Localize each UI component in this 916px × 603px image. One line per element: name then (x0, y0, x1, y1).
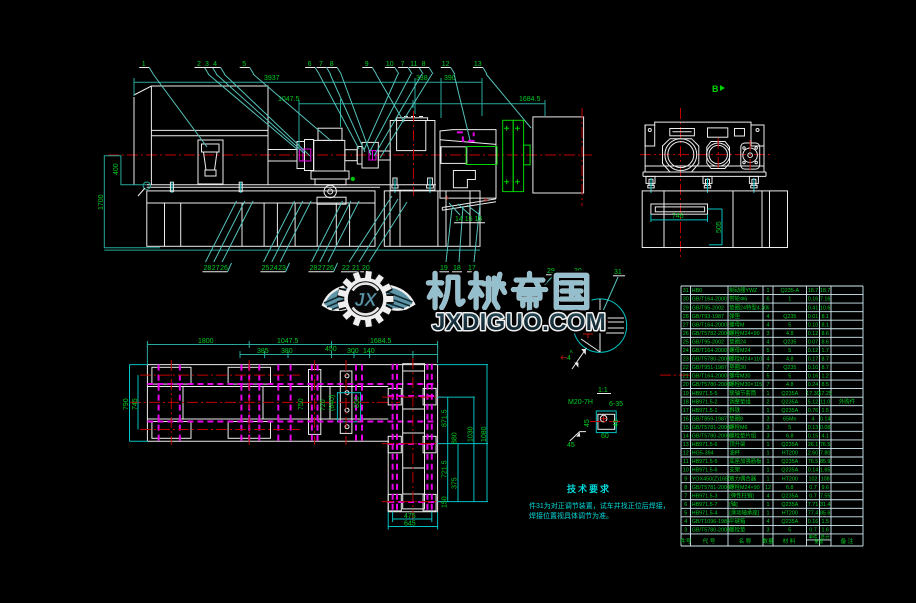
svg-text:18.7: 18.7 (808, 288, 819, 294)
svg-text:23: 23 (683, 357, 689, 363)
svg-text:代 号: 代 号 (703, 537, 716, 545)
svg-text:1030: 1030 (468, 426, 475, 442)
svg-text:4.8: 4.8 (786, 382, 794, 388)
svg-text:HB971.5-3: HB971.5-3 (692, 493, 718, 499)
svg-text:3937: 3937 (264, 75, 280, 82)
svg-text:1: 1 (767, 468, 770, 474)
svg-text:1.7: 1.7 (821, 348, 829, 354)
svg-text:400: 400 (113, 163, 120, 175)
svg-text:24: 24 (270, 265, 278, 272)
svg-text:1:1: 1:1 (598, 387, 608, 394)
svg-text:31.4: 31.4 (820, 502, 831, 508)
svg-text:18: 18 (683, 399, 689, 405)
svg-text:螺栓M6: 螺栓M6 (729, 423, 747, 431)
svg-text:7.16: 7.16 (820, 297, 831, 303)
svg-text:19: 19 (683, 391, 689, 397)
svg-text:1.2: 1.2 (821, 374, 829, 380)
svg-text:21: 21 (352, 265, 360, 272)
svg-text:斜铁: 斜铁 (729, 406, 740, 414)
svg-text:1: 1 (767, 502, 770, 508)
svg-text:1: 1 (767, 391, 770, 397)
svg-text:9.6: 9.6 (821, 485, 829, 491)
svg-text:螺栓M30×115: 螺栓M30×115 (729, 380, 762, 388)
svg-text:制动器YWZ: 制动器YWZ (729, 286, 758, 294)
svg-text:0.76: 0.76 (808, 408, 819, 414)
svg-text:10: 10 (386, 61, 394, 68)
svg-text:28: 28 (204, 265, 212, 272)
svg-text:3: 3 (767, 425, 770, 431)
svg-text:12: 12 (765, 485, 771, 491)
svg-text:螺母M: 螺母M (729, 320, 745, 328)
svg-text:[滑动轴承座]: [滑动轴承座] (729, 508, 759, 516)
svg-text:GB/T164-2000: GB/T164-2000 (692, 322, 727, 328)
svg-text:12: 12 (442, 61, 450, 68)
svg-text:4: 4 (767, 339, 770, 345)
svg-text:12: 12 (683, 451, 689, 457)
svg-text:Q235A: Q235A (781, 468, 798, 474)
svg-text:9: 9 (365, 61, 369, 68)
svg-text:20: 20 (683, 382, 689, 388)
svg-text:联轴节套筒: 联轴节套筒 (729, 389, 757, 397)
svg-text:15: 15 (683, 425, 689, 431)
svg-text:0.7: 0.7 (809, 493, 817, 499)
svg-text:108: 108 (821, 476, 830, 482)
svg-text:8.5: 8.5 (821, 382, 829, 388)
svg-text:300: 300 (347, 348, 359, 355)
svg-text:60: 60 (601, 433, 609, 440)
svg-text:24: 24 (683, 348, 689, 354)
svg-text:5: 5 (788, 322, 791, 328)
svg-text:4.8: 4.8 (786, 331, 794, 337)
svg-text:Q235: Q235 (783, 314, 796, 320)
svg-text:JX: JX (354, 290, 377, 310)
svg-text:GB/T164-2000: GB/T164-2000 (692, 348, 727, 354)
svg-text:450: 450 (325, 346, 337, 353)
svg-text:18.7: 18.7 (820, 288, 831, 294)
svg-text:4: 4 (767, 314, 770, 320)
svg-text:2: 2 (767, 399, 770, 405)
svg-text:1684.5: 1684.5 (370, 338, 392, 345)
svg-text:K: K (570, 349, 573, 354)
svg-text:7: 7 (767, 382, 770, 388)
svg-text:4: 4 (767, 493, 770, 499)
svg-text:YOX450(Z)1650: YOX450(Z)1650 (692, 476, 731, 482)
svg-text:4: 4 (767, 519, 770, 525)
svg-text:5: 5 (788, 374, 791, 380)
svg-text:1: 1 (142, 61, 146, 68)
svg-text:4.8: 4.8 (786, 357, 794, 363)
svg-text:GB/T5780-2000: GB/T5780-2000 (692, 434, 730, 440)
svg-text:Q235A: Q235A (781, 408, 798, 414)
svg-text:GB/T95-2002: GB/T95-2002 (692, 339, 724, 345)
svg-text:GB/T859-1987: GB/T859-1987 (692, 416, 727, 422)
svg-text:745: 745 (132, 398, 139, 410)
svg-text:8.1: 8.1 (821, 314, 829, 320)
svg-text:3: 3 (767, 416, 770, 422)
svg-text:M20-7H: M20-7H (568, 399, 593, 406)
svg-text:25: 25 (262, 265, 270, 272)
svg-text:5: 5 (767, 374, 770, 380)
svg-text:29: 29 (683, 305, 689, 311)
svg-text:5: 5 (684, 510, 687, 516)
svg-text:505: 505 (716, 221, 723, 233)
svg-text:11: 11 (683, 459, 689, 465)
svg-text:HG5-394: HG5-394 (692, 451, 714, 457)
svg-text:HB971.5-2: HB971.5-2 (692, 399, 718, 405)
svg-text:720: 720 (320, 399, 327, 411)
svg-text:1: 1 (767, 451, 770, 457)
svg-text:0.08: 0.08 (820, 425, 831, 431)
svg-text:45: 45 (584, 419, 591, 427)
svg-text:8.6: 8.6 (821, 339, 829, 345)
svg-text:0.07: 0.07 (808, 339, 819, 345)
svg-text:Q235-A: Q235-A (781, 288, 800, 294)
svg-text:螺栓M24×90: 螺栓M24×90 (729, 483, 759, 491)
svg-text:3: 3 (767, 528, 770, 534)
svg-text:871.5: 871.5 (442, 409, 449, 427)
svg-text:17: 17 (683, 408, 689, 414)
svg-text:焊接位置视具体调节为准。: 焊接位置视具体调节为准。 (529, 511, 613, 520)
svg-text:2.60: 2.60 (808, 451, 819, 457)
svg-text:6: 6 (767, 305, 770, 311)
svg-text:790: 790 (123, 398, 130, 410)
svg-text:475: 475 (404, 513, 416, 520)
svg-text:0.24: 0.24 (808, 382, 819, 388)
svg-text:垫圈24特型4.30: 垫圈24特型4.30 (729, 303, 767, 311)
svg-text:螺母M30: 螺母M30 (729, 372, 750, 380)
svg-text:17.25: 17.25 (818, 391, 832, 397)
svg-text:140: 140 (363, 348, 375, 355)
svg-text:B: B (712, 84, 719, 94)
svg-text:GB/T164-2000: GB/T164-2000 (692, 374, 727, 380)
svg-text:3: 3 (684, 528, 687, 534)
svg-text:油杯: 油杯 (729, 449, 740, 457)
svg-text:746: 746 (672, 213, 684, 220)
svg-text:垫圈8: 垫圈8 (729, 414, 743, 422)
svg-text:0.41: 0.41 (808, 305, 819, 311)
svg-text:0.16: 0.16 (808, 519, 819, 525)
svg-text:26: 26 (220, 265, 228, 272)
svg-text:1: 1 (767, 476, 770, 482)
svg-text:45: 45 (613, 419, 620, 427)
svg-text:1: 1 (767, 459, 770, 465)
svg-text:Q235A: Q235A (781, 502, 798, 508)
svg-text:外购件: 外购件 (839, 397, 856, 405)
svg-text:0.01: 0.01 (808, 314, 819, 320)
svg-text:13: 13 (683, 442, 689, 448)
svg-text:7.80: 7.80 (820, 451, 831, 457)
svg-text:JXDIGUO.COM: JXDIGUO.COM (432, 309, 606, 336)
svg-text:0.16: 0.16 (808, 297, 819, 303)
svg-text:液力偶合器: 液力偶合器 (729, 474, 757, 482)
svg-text:27: 27 (683, 322, 689, 328)
svg-text:GB/T5781-2000: GB/T5781-2000 (692, 425, 730, 431)
svg-text:150: 150 (442, 496, 449, 508)
svg-text:25: 25 (683, 339, 689, 345)
svg-text:顶升架: 顶升架 (729, 440, 746, 448)
svg-text:6: 6 (767, 297, 770, 303)
svg-text:4: 4 (812, 416, 815, 422)
svg-text:6.8: 6.8 (786, 434, 794, 440)
svg-text:645: 645 (404, 521, 416, 528)
svg-text:3: 3 (767, 434, 770, 440)
svg-text:6: 6 (684, 502, 687, 508)
svg-text:HB971.5-6: HB971.5-6 (692, 468, 718, 474)
svg-text:76.5: 76.5 (808, 459, 819, 465)
svg-text:HT200: HT200 (782, 451, 798, 457)
svg-text:3: 3 (205, 61, 209, 68)
svg-text:底座加强筋板: 底座加强筋板 (729, 457, 762, 465)
svg-text:Q235A: Q235A (781, 399, 798, 405)
svg-text:8.6: 8.6 (821, 331, 829, 337)
svg-text:8.1: 8.1 (821, 322, 829, 328)
svg-text:26.1: 26.1 (808, 442, 819, 448)
svg-text:27: 27 (318, 265, 326, 272)
svg-text:调整垫组: 调整垫组 (729, 397, 751, 405)
svg-text:4: 4 (767, 322, 770, 328)
svg-text:0.12: 0.12 (808, 331, 819, 337)
svg-text:技术要求: 技术要求 (567, 483, 611, 494)
svg-text:HB971.5-4: HB971.5-4 (692, 510, 718, 516)
svg-text:102: 102 (809, 476, 818, 482)
svg-text:带轮Φ6: 带轮Φ6 (729, 295, 747, 303)
svg-text:31: 31 (614, 269, 622, 276)
svg-text:23: 23 (278, 265, 286, 272)
svg-text:21: 21 (683, 374, 689, 380)
svg-text:6.8: 6.8 (786, 485, 794, 491)
svg-text:[弹性柱销]: [弹性柱销] (729, 491, 754, 499)
svg-text:4: 4 (684, 519, 687, 525)
svg-text:19: 19 (440, 265, 448, 272)
svg-text:1: 1 (767, 288, 770, 294)
svg-text:8.7: 8.7 (821, 357, 829, 363)
svg-text:6-35: 6-35 (609, 401, 623, 408)
svg-text:8: 8 (330, 61, 334, 68)
svg-text:7.71: 7.71 (808, 502, 819, 508)
svg-text:HB971.5-5: HB971.5-5 (692, 391, 718, 397)
svg-text:18: 18 (453, 265, 461, 272)
svg-text:4.1: 4.1 (821, 434, 829, 440)
svg-text:3: 3 (767, 331, 770, 337)
svg-text:1.5: 1.5 (821, 408, 829, 414)
svg-text:Q235A: Q235A (781, 493, 798, 499)
svg-text:螺母M24: 螺母M24 (729, 346, 750, 354)
svg-text:垫圈24: 垫圈24 (729, 337, 746, 345)
svg-text:Q235: Q235 (783, 365, 796, 371)
svg-text:1080: 1080 (481, 426, 488, 442)
svg-text:28: 28 (683, 314, 689, 320)
svg-text:11: 11 (410, 61, 417, 68)
svg-text:8: 8 (422, 61, 426, 68)
svg-text:Q235A: Q235A (781, 519, 798, 525)
svg-text:HB971.5-1: HB971.5-1 (692, 408, 718, 414)
svg-text:GB/T5781-2000: GB/T5781-2000 (692, 485, 730, 491)
svg-text:30: 30 (683, 297, 689, 303)
svg-text:名 称: 名 称 (739, 537, 752, 545)
svg-text:375: 375 (452, 477, 459, 489)
svg-text:GB/T93-1987: GB/T93-1987 (692, 314, 724, 320)
svg-text:31: 31 (683, 288, 689, 294)
svg-text:7: 7 (684, 493, 687, 499)
svg-text:Q235A: Q235A (781, 391, 798, 397)
svg-text:HB0: HB0 (692, 288, 703, 294)
svg-text:螺栓垫片组: 螺栓垫片组 (729, 432, 757, 440)
svg-text:垫圈30: 垫圈30 (729, 363, 746, 371)
svg-text:螺栓垫: 螺栓垫 (729, 526, 746, 534)
svg-text:平键箱: 平键箱 (729, 517, 746, 525)
svg-text:GB/T1096-1985: GB/T1096-1985 (692, 519, 730, 525)
svg-text:GB/T5782-2000: GB/T5782-2000 (692, 331, 730, 337)
svg-text:材 料: 材 料 (783, 537, 796, 545)
svg-text:HT200: HT200 (782, 510, 798, 516)
svg-text:Q235: Q235 (783, 339, 796, 345)
svg-text:7.55: 7.55 (820, 493, 831, 499)
svg-text:5.12: 5.12 (808, 399, 819, 405)
svg-text:1.5: 1.5 (821, 519, 829, 525)
svg-text:14: 14 (683, 434, 689, 440)
svg-text:27: 27 (212, 265, 220, 272)
svg-text:13: 13 (474, 61, 482, 68)
svg-text:Q235A: Q235A (781, 442, 798, 448)
svg-text:GB/T5780-2000: GB/T5780-2000 (692, 528, 730, 534)
svg-text:1047.5: 1047.5 (277, 338, 299, 345)
svg-text:0.15: 0.15 (808, 434, 819, 440)
svg-text:8.7: 8.7 (821, 365, 829, 371)
svg-text:1: 1 (788, 297, 791, 303)
svg-text:5: 5 (788, 348, 791, 354)
svg-text:22: 22 (342, 265, 350, 272)
svg-text:22: 22 (683, 365, 689, 371)
svg-text:1.6: 1.6 (821, 528, 829, 534)
svg-text:7: 7 (319, 61, 323, 68)
svg-text:1: 1 (767, 442, 770, 448)
svg-text:1: 1 (767, 510, 770, 516)
svg-text:0.7: 0.7 (809, 485, 817, 491)
svg-text:重量: 重量 (814, 538, 824, 545)
svg-text:1700: 1700 (98, 194, 105, 210)
svg-text:385: 385 (257, 348, 269, 355)
svg-text:45: 45 (567, 442, 575, 449)
svg-text:77.4: 77.4 (808, 510, 819, 516)
svg-text:HB971.5-6: HB971.5-6 (692, 442, 718, 448)
svg-text:数量: 数量 (762, 537, 774, 545)
svg-text:件31为对正调节装置，试车并找正位后焊接，: 件31为对正调节装置，试车并找正位后焊接， (529, 501, 670, 510)
svg-text:GB/T164-2000: GB/T164-2000 (692, 297, 727, 303)
svg-text:0.12: 0.12 (808, 348, 819, 354)
svg-text:750: 750 (298, 398, 305, 410)
svg-text:1: 1 (767, 408, 770, 414)
svg-text:件号: 件号 (680, 537, 692, 545)
svg-text:0.14: 0.14 (820, 416, 831, 422)
svg-text:6: 6 (308, 61, 312, 68)
svg-text:26: 26 (326, 265, 334, 272)
svg-text:0.16: 0.16 (808, 374, 819, 380)
svg-text:HB971.5-5: HB971.5-5 (692, 459, 718, 465)
svg-text:(640): (640) (329, 395, 336, 411)
svg-text:7: 7 (767, 365, 770, 371)
svg-text:GB/T5780-2000: GB/T5780-2000 (692, 382, 730, 388)
svg-text:10: 10 (683, 468, 689, 474)
svg-text:5: 5 (242, 61, 246, 68)
svg-text:支架: 支架 (729, 466, 740, 474)
svg-text:Q235A: Q235A (781, 459, 798, 465)
svg-text:0.17: 0.17 (808, 357, 819, 363)
svg-text:1047.5: 1047.5 (278, 96, 300, 103)
svg-text:备 注: 备 注 (841, 537, 854, 545)
svg-text:0.7: 0.7 (809, 528, 817, 534)
svg-text:0.10: 0.10 (808, 365, 819, 371)
svg-text:880: 880 (452, 432, 459, 444)
svg-text:16: 16 (683, 416, 689, 422)
svg-text:10.6: 10.6 (820, 305, 831, 311)
svg-text:7: 7 (401, 61, 405, 68)
svg-text:5: 5 (788, 528, 791, 534)
svg-text:9: 9 (684, 476, 687, 482)
svg-text:螺栓M24×90: 螺栓M24×90 (729, 329, 759, 337)
svg-text:GB/T95-2002: GB/T95-2002 (692, 305, 724, 311)
svg-text:4: 4 (213, 61, 217, 68)
svg-text:380: 380 (281, 348, 293, 355)
svg-text:5: 5 (788, 425, 791, 431)
svg-text:GB/T951-1987: GB/T951-1987 (692, 365, 727, 371)
svg-text:HB971.5-7: HB971.5-7 (692, 502, 718, 508)
svg-text:8: 8 (684, 485, 687, 491)
svg-text:4: 4 (567, 355, 571, 362)
svg-text:1800: 1800 (198, 338, 214, 345)
svg-text:11.0: 11.0 (820, 399, 830, 405)
svg-text:85.9: 85.9 (820, 459, 831, 465)
svg-text:4: 4 (767, 357, 770, 363)
svg-text:HT200: HT200 (782, 476, 798, 482)
svg-text:28: 28 (310, 265, 318, 272)
svg-text:弹垫: 弹垫 (729, 312, 740, 320)
svg-text:0.14: 0.14 (808, 468, 819, 474)
svg-text:85.6: 85.6 (820, 510, 831, 516)
svg-text:0.13: 0.13 (808, 425, 819, 431)
svg-text:0.10: 0.10 (808, 322, 819, 328)
svg-text:721.5: 721.5 (442, 460, 449, 478)
svg-text:65Mn: 65Mn (783, 416, 797, 422)
svg-text:26: 26 (683, 331, 689, 337)
svg-text:[轴]: [轴] (729, 500, 738, 508)
svg-text:5: 5 (767, 348, 770, 354)
svg-text:1.65: 1.65 (820, 468, 831, 474)
svg-text:GB/T5780-2000: GB/T5780-2000 (692, 357, 730, 363)
svg-text:14 15 16: 14 15 16 (455, 216, 482, 223)
svg-text:螺栓M24×110: 螺栓M24×110 (729, 355, 762, 363)
svg-text:76.5: 76.5 (820, 442, 831, 448)
svg-text:650: 650 (354, 396, 361, 408)
svg-text:1684.5: 1684.5 (519, 96, 541, 103)
svg-text:2: 2 (197, 61, 201, 68)
